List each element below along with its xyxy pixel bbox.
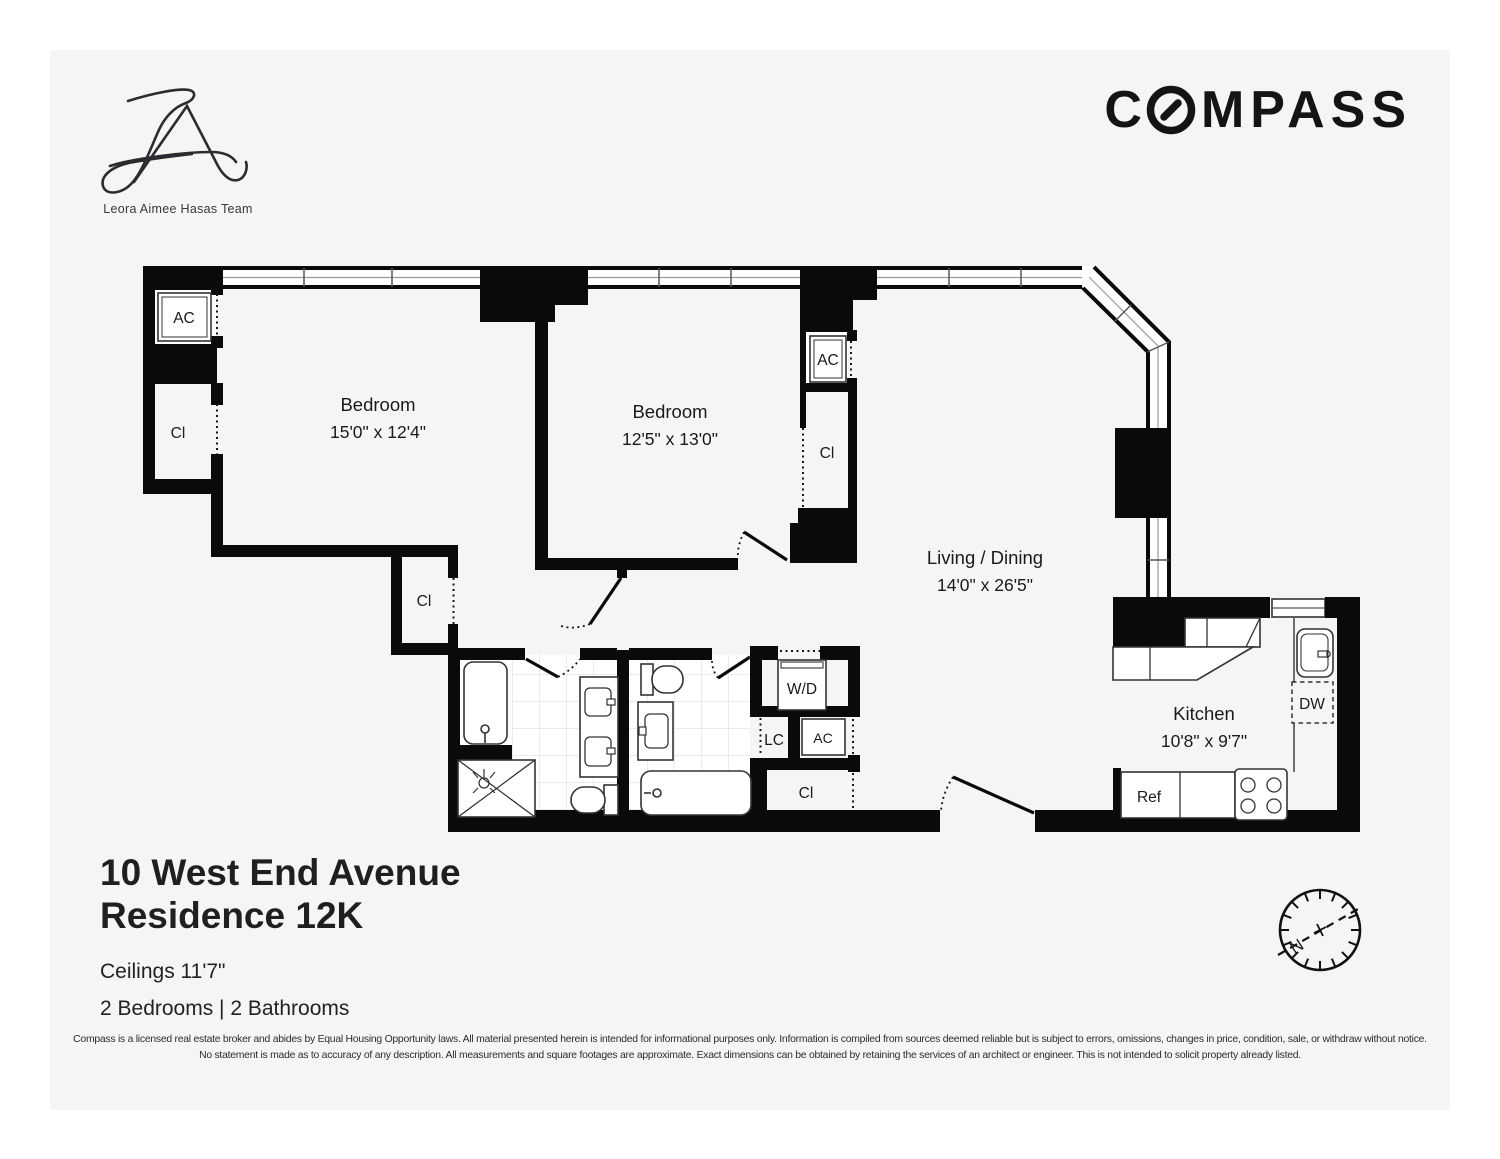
dw-label: DW (1299, 696, 1325, 713)
cl-label-bedroom1: Cl (171, 425, 186, 442)
beds-baths-spec: 2 Bedrooms | 2 Bathrooms (100, 997, 461, 1021)
shower (458, 760, 535, 817)
bedroom2-dims: 12'5" x 13'0" (622, 429, 718, 449)
kitchen-sink (1297, 629, 1333, 677)
disclaimer-line2: No statement is made as to accuracy of a… (50, 1048, 1450, 1064)
kitchen-name: Kitchen (1173, 703, 1235, 724)
lc-label: LC (764, 732, 784, 749)
address-line1: 10 West End Avenue (100, 852, 461, 893)
double-vanity (580, 677, 618, 777)
ac-label-bedroom1: AC (173, 310, 195, 327)
living-name: Living / Dining (927, 547, 1043, 568)
ac-label-closet: AC (813, 730, 832, 746)
ceilings-spec: Ceilings 11'7" (100, 960, 461, 984)
compass-rose-icon: N (1278, 890, 1360, 970)
disclaimer-line1: Compass is a licensed real estate broker… (50, 1032, 1450, 1048)
bedroom2-name: Bedroom (632, 401, 707, 422)
cl-label-hall: Cl (417, 593, 432, 610)
cl-label-bedroom2: Cl (820, 445, 835, 462)
ref-label: Ref (1137, 789, 1162, 806)
bedroom1-dims: 15'0" x 12'4" (330, 422, 426, 442)
address-title: 10 West End Avenue Residence 12K (100, 851, 461, 938)
ac-label-bedroom2: AC (817, 352, 839, 369)
title-block: 10 West End Avenue Residence 12K Ceiling… (100, 851, 461, 1021)
cl-label-foyer: Cl (799, 785, 814, 802)
bathtub-1 (464, 662, 507, 744)
disclaimer: Compass is a licensed real estate broker… (50, 1032, 1450, 1064)
floorplan-page: Leora Aimee Hasas Team C MPASS (0, 0, 1500, 1159)
bathtub-2 (641, 771, 751, 815)
living-dims: 14'0" x 26'5" (937, 575, 1033, 595)
toilet-2 (641, 664, 683, 695)
stove (1235, 769, 1287, 820)
bedroom1-name: Bedroom (340, 394, 415, 415)
wd-label: W/D (787, 681, 817, 698)
kitchen-dims: 10'8" x 9'7" (1161, 731, 1247, 751)
toilet-1 (571, 785, 618, 815)
vanity-2 (638, 702, 673, 760)
address-line2: Residence 12K (100, 895, 363, 936)
